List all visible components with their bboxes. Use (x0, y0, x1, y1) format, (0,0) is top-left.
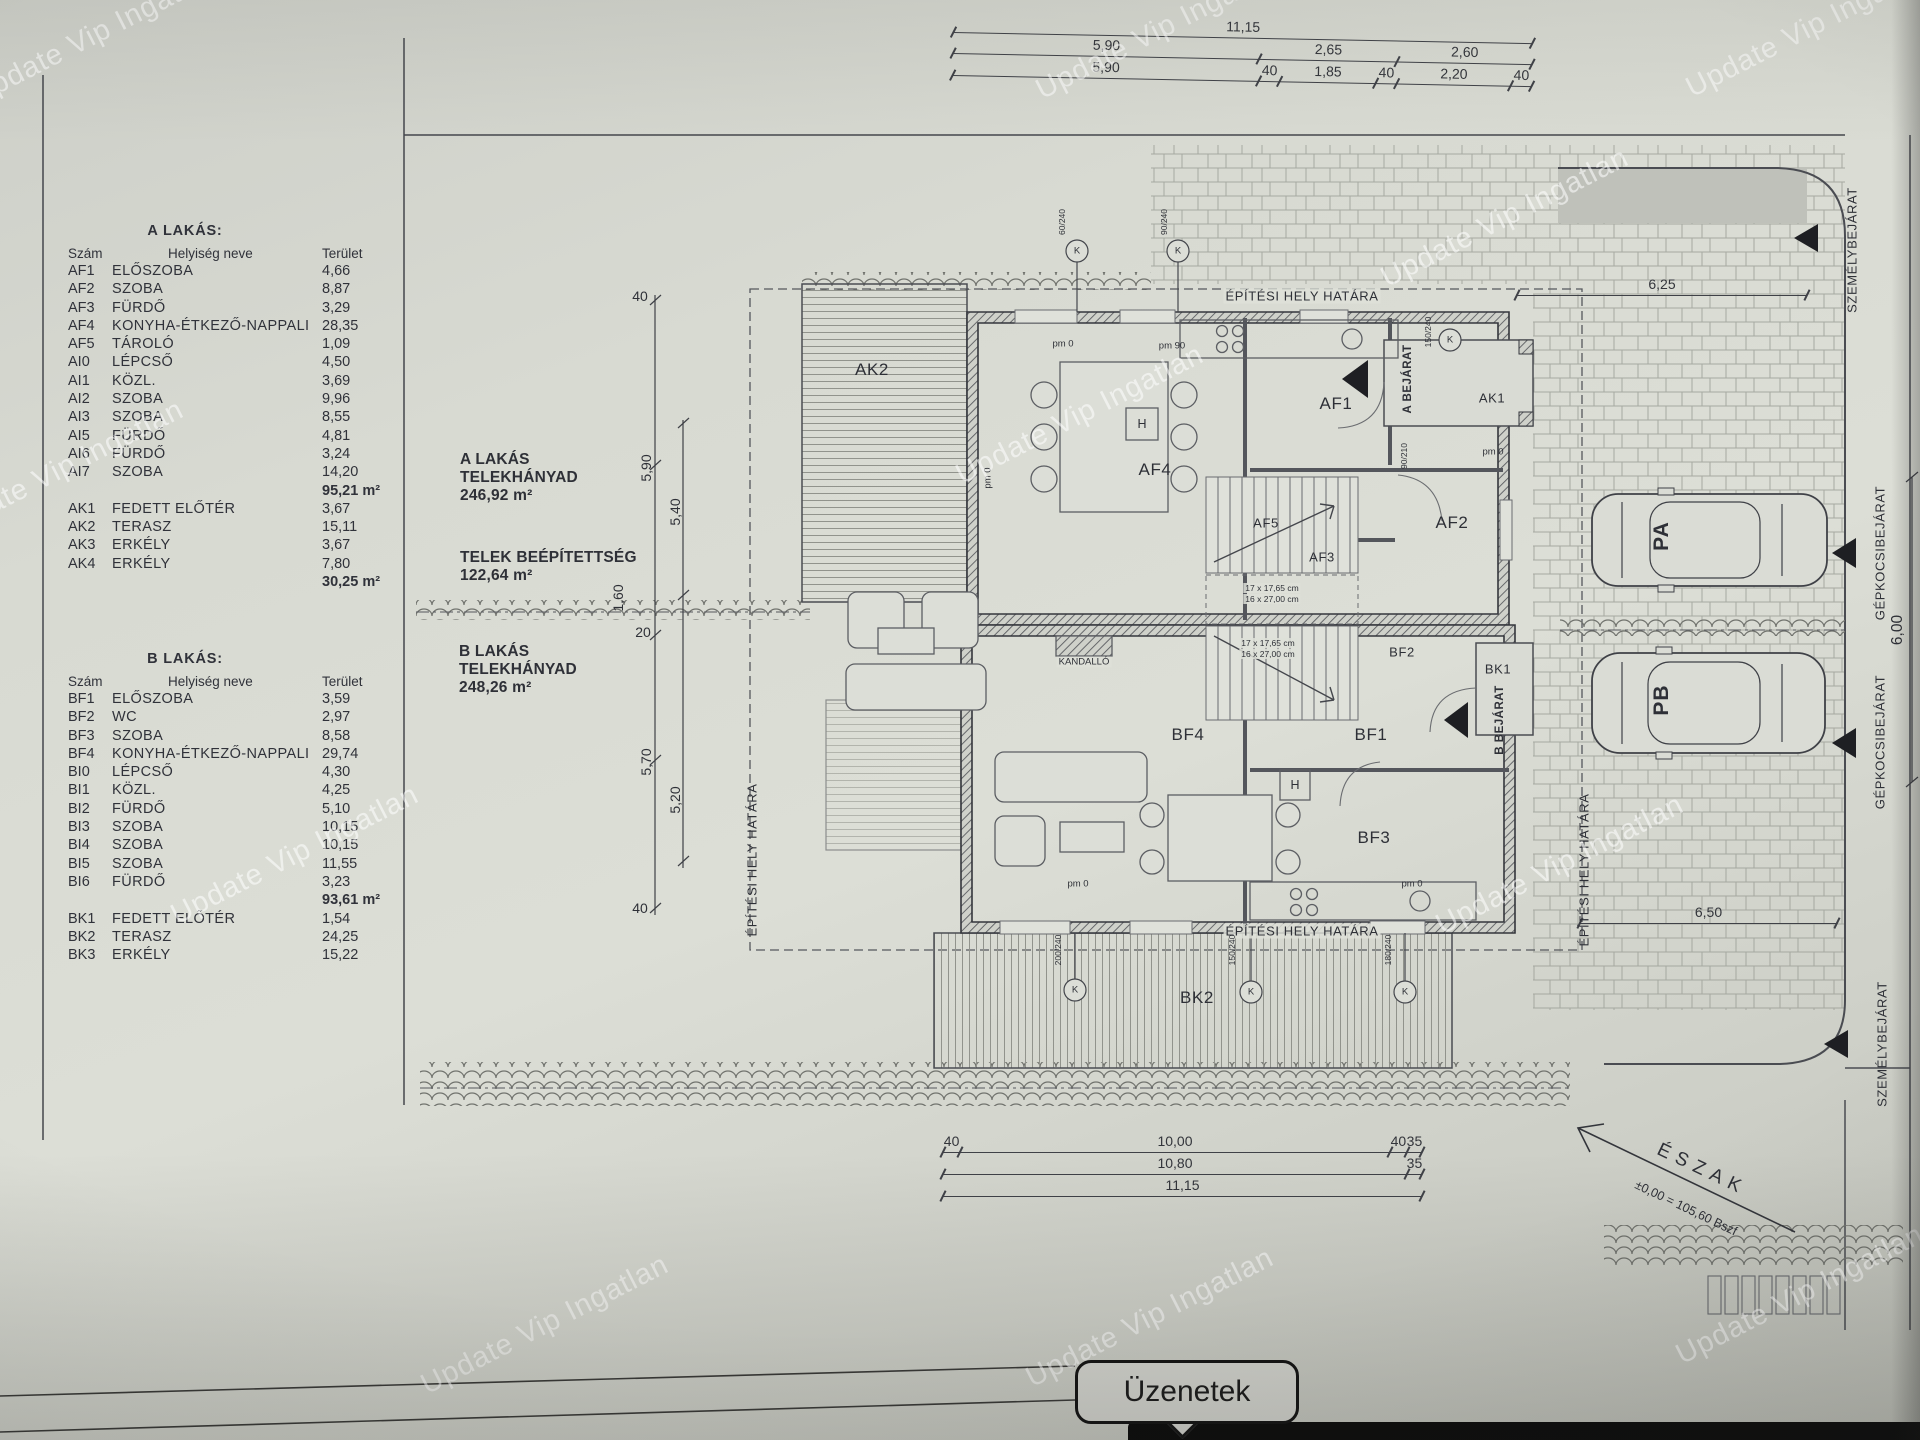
schedule-cell: Helyiség neve (168, 245, 253, 262)
schedule-cell: 8,58 (322, 727, 350, 745)
schedule-cell: BF4 (68, 745, 95, 763)
site-info-b-telekhanyad: TELEKHÁNYAD (459, 661, 577, 679)
table-row: AF5TÁROLÓ1,09 (60, 335, 460, 353)
entry-szemely-2: SZEMÉLYBEJÁRAT (1875, 981, 1890, 1107)
schedule-cell: TÁROLÓ (112, 335, 174, 353)
dim-line (1517, 295, 1807, 296)
schedule-cell: 28,35 (322, 317, 358, 335)
schedule-cell: 7,80 (322, 555, 350, 573)
schedule-cell: 11,55 (322, 855, 357, 873)
entry-label-a: A BEJÁRAT (1402, 344, 1414, 413)
schedule-cell: 24,25 (322, 928, 358, 946)
k-marker: K (1072, 985, 1078, 996)
table-row: BK3ERKÉLY15,22 (60, 946, 460, 964)
dim-label: 35 (1407, 1133, 1423, 1149)
schedule-cell: 3,23 (322, 873, 350, 891)
schedule-cell: KONYHA-ÉTKEZŐ-NAPPALI (112, 745, 309, 763)
site-info-b-area: 248,26 m² (459, 679, 531, 697)
schedule-cell: Szám (68, 673, 103, 690)
schedule-cell: 3,24 (322, 445, 350, 463)
room-label-af2: AF2 (1436, 513, 1469, 533)
schedule-cell: AF2 (68, 280, 95, 298)
schedule-cell: BK2 (68, 928, 95, 946)
schedule-cell: ERKÉLY (112, 555, 171, 573)
schedule-cell: SZOBA (112, 280, 163, 298)
fireplace-label: KANDALLÓ (1057, 657, 1112, 668)
dim-label: 2,20 (1440, 65, 1468, 82)
dim-label: 6,50 (1695, 904, 1722, 920)
messages-button[interactable]: Üzenetek (1075, 1360, 1299, 1424)
dim-label: 40 (1513, 67, 1529, 83)
dim-label: 2,65 (1315, 41, 1343, 58)
photo-edge-lines (0, 1366, 1075, 1432)
schedule-cell: AF3 (68, 299, 95, 317)
k-marker: K (1175, 246, 1181, 257)
table-row: AI7SZOBA14,20 (60, 463, 460, 481)
table-row: BF1ELŐSZOBA3,59 (60, 690, 460, 708)
dim-chain: 6,50 (1580, 901, 1837, 929)
dim-label: 2,60 (1451, 44, 1479, 61)
boundary-label-top: ÉPÍTÉSI HELY HATÁRA (1224, 289, 1381, 304)
top-dimension-chains: 11,15 5,902,652,60 5,90401,85402,2040 (952, 10, 1533, 121)
schedule-cell: 29,74 (322, 745, 358, 763)
appliance-h: H (1137, 417, 1146, 431)
balcony (826, 700, 961, 850)
schedule-cell: FÜRDŐ (112, 873, 166, 891)
room-label-ak2: AK2 (855, 360, 889, 380)
stair-note: 17 x 17,65 cm (1239, 638, 1296, 648)
schedule-cell: Helyiség neve (168, 673, 253, 690)
schedule-cell: ELŐSZOBA (112, 690, 193, 708)
room-label-af5: AF5 (1253, 516, 1279, 531)
parking-label-pb: PB (1650, 684, 1674, 715)
entry-szemely-1: SZEMÉLYBEJÁRAT (1845, 187, 1860, 313)
schedule-cell: 4,66 (322, 262, 350, 280)
room-label-ak1: AK1 (1479, 391, 1505, 406)
schedule-cell: AI2 (68, 390, 90, 408)
schedule-cell: KÖZL. (112, 781, 156, 799)
schedule-cell: 8,55 (322, 408, 350, 426)
table-row: AK1FEDETT ELŐTÉR3,67 (60, 500, 460, 518)
dim-left: 20 (635, 624, 651, 640)
car-pa (1592, 488, 1827, 592)
size-note: 60/240 (1057, 209, 1067, 235)
table-row: AF3FÜRDŐ3,29 (60, 299, 460, 317)
schedule-cell: BI2 (68, 800, 90, 818)
table-row: BI0LÉPCSŐ4,30 (60, 763, 460, 781)
schedule-cell: 3,59 (322, 690, 350, 708)
site-info-a-lakas: A LAKÁS (460, 451, 530, 469)
pm-note: pm 0 (1401, 879, 1422, 890)
dim-600-line (1906, 472, 1918, 787)
dim-label: 40 (1262, 62, 1278, 78)
site-info-beepitettseg-area: 122,64 m² (460, 567, 532, 585)
room-label-bf3: BF3 (1358, 828, 1391, 848)
schedule-cell: WC (112, 708, 137, 726)
size-note: 150/240 (1423, 317, 1433, 348)
table-row: AF2SZOBA8,87 (60, 280, 460, 298)
k-marker: K (1248, 987, 1254, 998)
schedule-cell: 3,29 (322, 299, 350, 317)
room-label-bf1: BF1 (1355, 725, 1388, 745)
dim-left: 5,70 (638, 748, 654, 775)
schedule-cell: 95,21 m² (322, 482, 380, 500)
table-row: AF4KONYHA-ÉTKEZŐ-NAPPALI28,35 (60, 317, 460, 335)
schedule-cell: AK3 (68, 536, 95, 554)
schedule-cell: AF1 (68, 262, 95, 280)
boundary-label-left: ÉPÍTÉSI HELY HATÁRA (745, 784, 760, 937)
schedule-cell: BF1 (68, 690, 95, 708)
schedule-cell: 4,81 (322, 427, 350, 445)
table-row: AK3ERKÉLY3,67 (60, 536, 460, 554)
table-row: SzámHelyiség neveTerület (60, 673, 460, 690)
table-row: SzámHelyiség neveTerület (60, 245, 460, 262)
table-row: 30,25 m² (60, 573, 460, 591)
table-row: BF2WC2,97 (60, 708, 460, 726)
dim-label: 1,85 (1314, 63, 1342, 80)
car-pb (1592, 647, 1825, 759)
schedule-cell: AI1 (68, 372, 90, 390)
schedule-cell: ERKÉLY (112, 946, 171, 964)
schedule-cell: TERASZ (112, 518, 172, 536)
table-row: BF4KONYHA-ÉTKEZŐ-NAPPALI29,74 (60, 745, 460, 763)
schedule-cell: BK1 (68, 910, 95, 928)
schedule-cell: 14,20 (322, 463, 358, 481)
schedule-cell: Szám (68, 245, 103, 262)
terrace-ak2 (802, 284, 967, 602)
schedule-cell: 4,50 (322, 353, 350, 371)
schedule-cell: 4,30 (322, 763, 350, 781)
dim-label: 40 (944, 1133, 960, 1149)
schedule-cell: 2,97 (322, 708, 350, 726)
schedule-cell: 1,54 (322, 910, 350, 928)
schedule-cell: 1,09 (322, 335, 350, 353)
dim-label: 11,15 (1226, 18, 1260, 35)
k-marker: K (1074, 246, 1080, 257)
schedule-cell: TERASZ (112, 928, 172, 946)
schedule-cell: LÉPCSŐ (112, 763, 173, 781)
dim-label: 6,25 (1648, 276, 1675, 292)
stair-note: 17 x 17,65 cm (1243, 583, 1300, 593)
size-note: 90/240 (1159, 209, 1169, 235)
table-row: BI3SZOBA10,15 (60, 818, 460, 836)
dim-line (943, 1196, 1422, 1197)
size-note: 90/210 (1399, 443, 1409, 469)
schedule-cell: 15,22 (322, 946, 358, 964)
dim-chain: 6,25 (1517, 273, 1807, 301)
schedule-cell: BI1 (68, 781, 90, 799)
schedule-cell: 93,61 m² (322, 891, 380, 909)
schedule-cell: KÖZL. (112, 372, 156, 390)
table-row: AK4ERKÉLY7,80 (60, 555, 460, 573)
schedule-cell: SZOBA (112, 855, 163, 873)
room-schedule-a: A LAKÁS:SzámHelyiség neveTerületAF1ELŐSZ… (60, 222, 460, 591)
dim-label: 35 (1407, 1155, 1423, 1171)
dim-left: 40 (632, 288, 648, 304)
entry-gepkocsi-2: GÉPKOCSIBEJÁRAT (1873, 675, 1888, 809)
table-row: BI4SZOBA10,15 (60, 836, 460, 854)
schedule-cell: BF2 (68, 708, 95, 726)
dim-left: 5,20 (667, 786, 683, 813)
schedule-cell: BI4 (68, 836, 90, 854)
stair-note: 16 x 27,00 cm (1239, 649, 1296, 659)
schedule-cell: FEDETT ELŐTÉR (112, 500, 235, 518)
dim-left: 5,90 (638, 454, 654, 481)
schedule-cell: BI5 (68, 855, 90, 873)
room-label-bf2: BF2 (1389, 645, 1415, 660)
schedule-cell: SZOBA (112, 836, 163, 854)
schedule-cell: ERKÉLY (112, 536, 171, 554)
schedule-cell: LÉPCSŐ (112, 353, 173, 371)
room-label-bf4: BF4 (1172, 725, 1205, 745)
size-note: 200/240 (1053, 935, 1063, 966)
schedule-cell: AF5 (68, 335, 95, 353)
schedule-cell: ELŐSZOBA (112, 262, 193, 280)
boundary-label-bottom: ÉPÍTÉSI HELY HATÁRA (1224, 924, 1381, 939)
schedule-cell: AK2 (68, 518, 95, 536)
dim-left: 1,60 (610, 584, 626, 611)
site-info-b-lakas: B LAKÁS (459, 643, 529, 661)
room-label-bk1: BK1 (1485, 662, 1511, 677)
schedule-cell: 4,25 (322, 781, 350, 799)
size-note: 180/240 (1383, 935, 1393, 966)
schedule-cell: 3,67 (322, 536, 350, 554)
size-note: 150/240 (1227, 935, 1237, 966)
schedule-cell: AK4 (68, 555, 95, 573)
schedule-cell: SZOBA (112, 463, 163, 481)
dim-chain: 11,15 (943, 1174, 1422, 1202)
table-row: AI2SZOBA9,96 (60, 390, 460, 408)
schedule-cell: AI3 (68, 408, 90, 426)
schedule-cell: Terület (322, 673, 363, 690)
table-title: A LAKÁS: (60, 222, 460, 245)
table-row: BK1FEDETT ELŐTÉR1,54 (60, 910, 460, 928)
pm-note: pm 0 (1067, 879, 1088, 890)
bottom-bar (1128, 1422, 1920, 1440)
entry-gepkocsi-1: GÉPKOCSIBEJÁRAT (1873, 486, 1888, 620)
schedule-cell: BI0 (68, 763, 90, 781)
schedule-cell: 9,96 (322, 390, 350, 408)
schedule-cell: KONYHA-ÉTKEZŐ-NAPPALI (112, 317, 309, 335)
table-row: BF3SZOBA8,58 (60, 727, 460, 745)
stair-note: 16 x 27,00 cm (1243, 594, 1300, 604)
pm-note: pm 0 (1052, 339, 1073, 350)
table-row: AK2TERASZ15,11 (60, 518, 460, 536)
schedule-cell: AF4 (68, 317, 95, 335)
schedule-cell: 3,67 (322, 500, 350, 518)
messages-label: Üzenetek (1124, 1375, 1251, 1409)
floor-plan-photo: A LAKÁS:SzámHelyiség neveTerületAF1ELŐSZ… (0, 0, 1920, 1440)
site-info-a-telekhanyad: TELEKHÁNYAD (460, 469, 578, 487)
site-info-a-area: 246,92 m² (460, 487, 532, 505)
schedule-cell: BF3 (68, 727, 95, 745)
dim-label: 10,80 (1157, 1155, 1192, 1171)
schedule-cell: BI6 (68, 873, 90, 891)
schedule-cell: FÜRDŐ (112, 299, 166, 317)
table-row: 93,61 m² (60, 891, 460, 909)
room-label-af1: AF1 (1320, 394, 1353, 414)
k-marker: K (1447, 335, 1453, 346)
appliance-h: H (1290, 778, 1299, 792)
room-label-bk2: BK2 (1180, 988, 1214, 1008)
schedule-cell: AK1 (68, 500, 95, 518)
schedule-cell: 3,69 (322, 372, 350, 390)
dim-600: 6,00 (1889, 615, 1907, 645)
table-row: 95,21 m² (60, 482, 460, 500)
site-info-beepitettseg: TELEK BEÉPÍTETTSÉG (460, 549, 637, 567)
schedule-cell: 30,25 m² (322, 573, 380, 591)
dim-line (1580, 923, 1837, 924)
dim-left: 5,40 (667, 498, 683, 525)
dim-label: 40 (1378, 64, 1394, 80)
schedule-cell: 8,87 (322, 280, 350, 298)
table-title: B LAKÁS: (60, 650, 460, 673)
dim-left: 40 (632, 900, 648, 916)
schedule-cell: FÜRDŐ (112, 800, 166, 818)
parking-label-pa: PA (1650, 521, 1674, 551)
pm-note: pm 0 (1482, 447, 1503, 458)
schedule-cell: SZOBA (112, 818, 163, 836)
table-row: AI1KÖZL.3,69 (60, 372, 460, 390)
schedule-cell: 15,11 (322, 518, 357, 536)
dim-label: 11,15 (1166, 1177, 1200, 1193)
dim-label: 40 (1391, 1133, 1407, 1149)
k-marker: K (1402, 987, 1408, 998)
schedule-cell: BI3 (68, 818, 90, 836)
table-row: BK2TERASZ24,25 (60, 928, 460, 946)
entry-label-b: B BEJÁRAT (1494, 685, 1506, 754)
table-row: AF1ELŐSZOBA4,66 (60, 262, 460, 280)
dim-label: 10,00 (1157, 1133, 1192, 1149)
schedule-cell: BK3 (68, 946, 95, 964)
table-row: AI0LÉPCSŐ4,50 (60, 353, 460, 371)
schedule-cell: Terület (322, 245, 363, 262)
room-label-af4: AF4 (1139, 460, 1172, 480)
schedule-cell: SZOBA (112, 727, 163, 745)
schedule-cell: AI0 (68, 353, 90, 371)
room-label-af3: AF3 (1309, 550, 1335, 565)
